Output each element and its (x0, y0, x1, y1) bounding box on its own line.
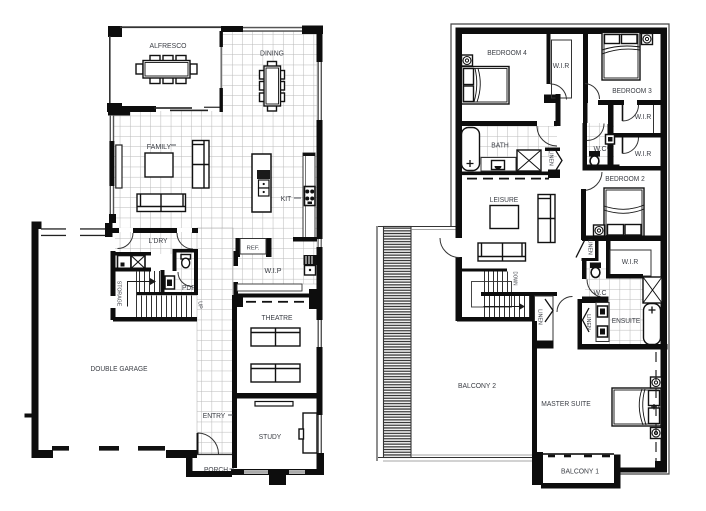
svg-text:LINEN: LINEN (537, 309, 543, 325)
svg-text:KIT: KIT (281, 194, 292, 203)
svg-text:UP: UP (197, 301, 203, 309)
svg-text:ENTRY: ENTRY (203, 411, 226, 420)
svg-text:BEDROOM 3: BEDROOM 3 (612, 86, 652, 95)
svg-text:BEDROOM 2: BEDROOM 2 (605, 174, 645, 183)
svg-text:STUDY: STUDY (259, 432, 282, 441)
svg-text:ALFRESCO: ALFRESCO (150, 41, 187, 50)
svg-text:BALCONY 2: BALCONY 2 (458, 381, 496, 390)
svg-text:DOWN: DOWN (512, 272, 518, 286)
svg-text:LINEN: LINEN (587, 239, 593, 255)
svg-text:BALCONY 1: BALCONY 1 (561, 467, 599, 476)
svg-text:W.I.P: W.I.P (265, 266, 282, 275)
svg-text:THEATRE: THEATRE (262, 313, 293, 322)
svg-text:MASTER SUITE: MASTER SUITE (541, 399, 591, 408)
svg-text:BEDROOM 4: BEDROOM 4 (487, 48, 527, 57)
svg-text:BATH: BATH (491, 141, 509, 150)
svg-text:LEISURE: LEISURE (490, 195, 519, 204)
svg-text:LINEN: LINEN (548, 150, 554, 166)
svg-text:LINEN: LINEN (585, 314, 591, 330)
svg-text:ENSUITE: ENSUITE (612, 316, 641, 325)
svg-text:FAMILY: FAMILY (147, 142, 172, 151)
svg-text:DOUBLE GARAGE: DOUBLE GARAGE (91, 364, 148, 373)
svg-text:DINING: DINING (260, 49, 284, 58)
svg-text:W.C: W.C (594, 144, 607, 153)
svg-text:W.C: W.C (594, 288, 607, 297)
svg-text:W.I.R: W.I.R (635, 149, 652, 158)
svg-text:L'DRY: L'DRY (149, 236, 168, 245)
svg-text:STORAGE: STORAGE (116, 281, 122, 307)
svg-text:W.I.R: W.I.R (635, 112, 652, 121)
svg-text:REF.: REF. (247, 246, 260, 252)
svg-text:W.I.R: W.I.R (553, 61, 570, 70)
svg-text:W.I.R: W.I.R (622, 257, 639, 266)
